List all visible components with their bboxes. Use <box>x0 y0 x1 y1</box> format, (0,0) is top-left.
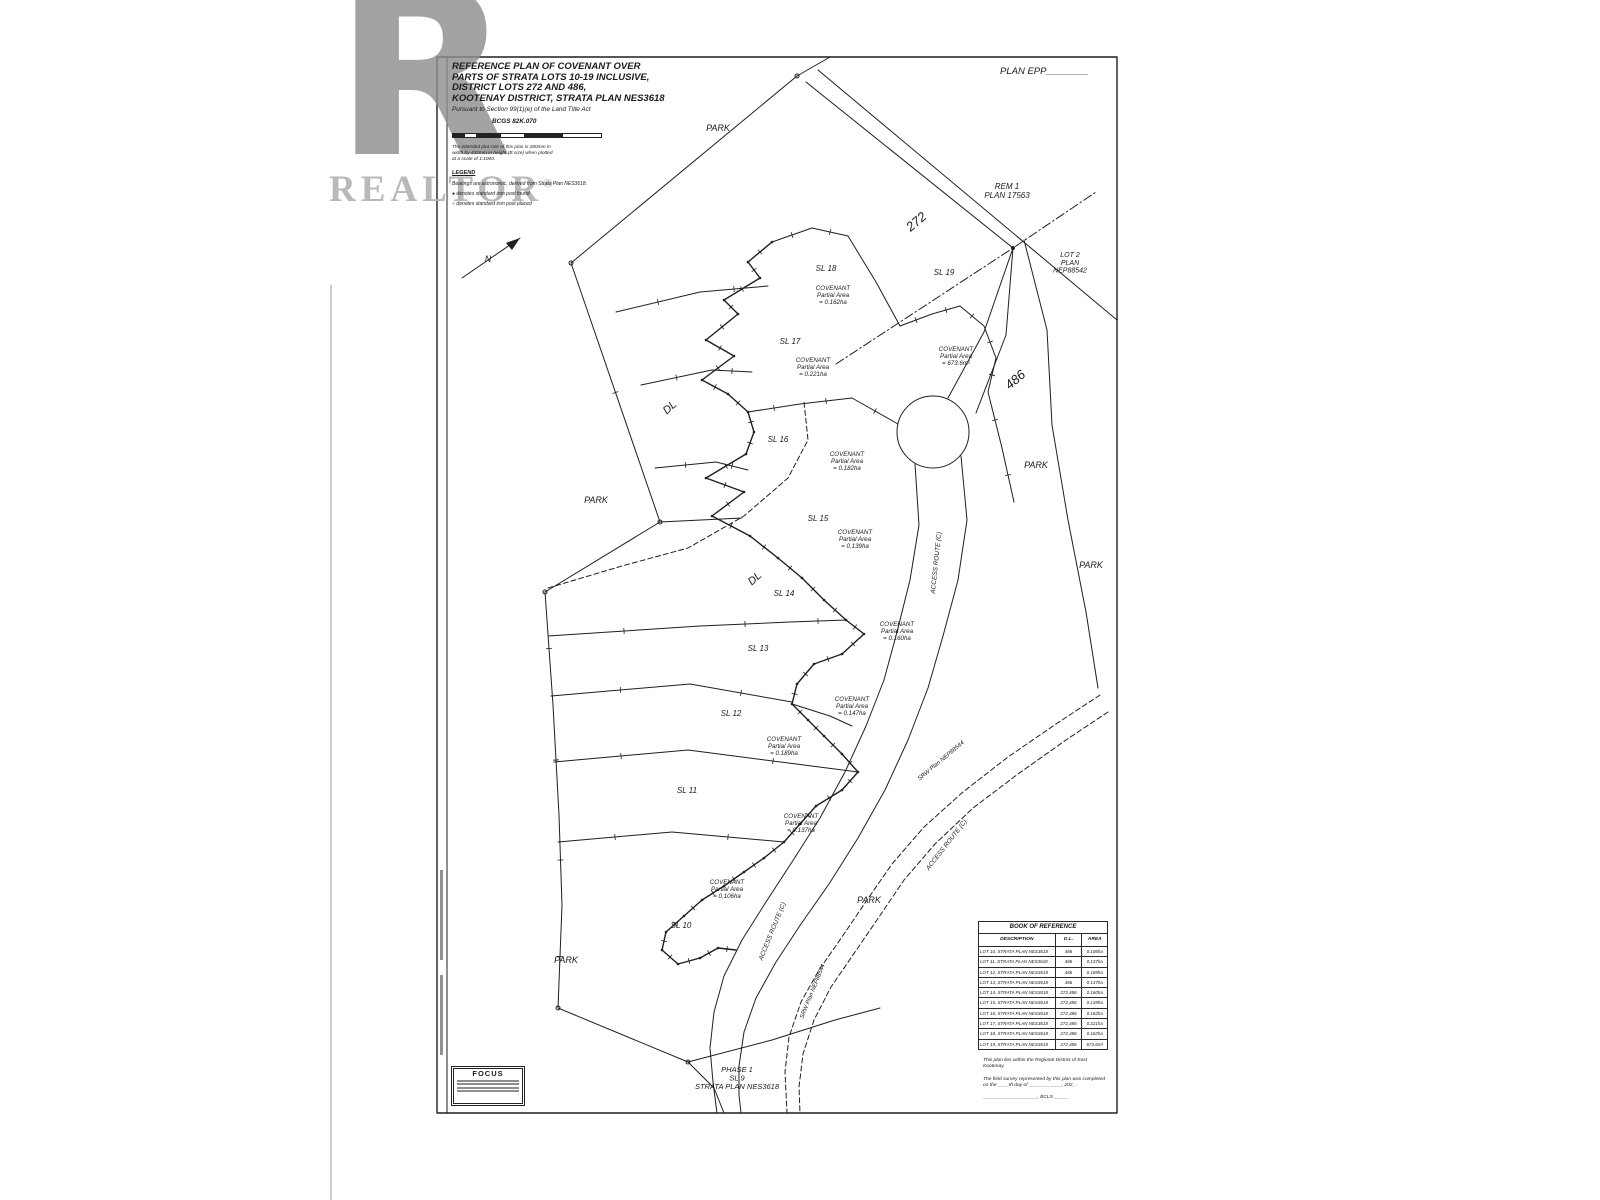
survey-point <box>807 719 810 722</box>
table-cell: 0.160ha <box>1082 988 1108 998</box>
north-arrow-head <box>506 238 520 250</box>
bearing-tick <box>728 834 729 840</box>
bcgs-reference: BCGS 82K.070 <box>492 118 682 125</box>
lot-line <box>655 462 748 470</box>
scale-bar <box>452 130 602 138</box>
survey-point <box>747 261 750 264</box>
table-cell: 0.189ha <box>1082 967 1108 977</box>
lot-line <box>641 370 752 385</box>
table-row: LOT 10, STRATA PLAN NES36184860.106ha <box>979 947 1108 957</box>
survey-point <box>701 379 704 382</box>
lot-line <box>558 832 784 842</box>
covenant-18-label: COVENANTPartial Area= 0.162ha <box>816 285 852 306</box>
west-boundary <box>545 522 660 592</box>
table-cell: 673.6m² <box>1082 1039 1108 1049</box>
table-cell: 486 <box>1055 947 1082 957</box>
survey-point <box>823 599 826 602</box>
survey-point <box>665 931 668 934</box>
survey-point <box>749 535 752 538</box>
table-head: BOOK OF REFERENCE DESCRIPTIOND.L.AREA <box>979 922 1108 947</box>
survey-point <box>857 771 860 774</box>
cul-de-sac <box>897 396 969 468</box>
lot2-plan-label: LOT 2PLANNEP88542 <box>1053 252 1087 275</box>
table-cell: LOT 19, STRATA PLAN NES3618 <box>979 1039 1056 1049</box>
table-cell: 272,486 <box>1055 1008 1082 1018</box>
table-cell: 0.147ha <box>1082 977 1108 987</box>
table-cell: LOT 14, STRATA PLAN NES3618 <box>979 988 1056 998</box>
lot-line <box>551 684 792 702</box>
table-title-row: BOOK OF REFERENCE <box>979 922 1108 934</box>
srw-plan-label: SRW Plan NEP88544 <box>799 963 827 1020</box>
survey-point <box>783 841 786 844</box>
survey-point <box>723 299 726 302</box>
dl-boundary <box>836 192 1096 364</box>
table-row: LOT 11, STRATA PLAN NES36184860.137ha <box>979 957 1108 967</box>
bearing-tick <box>615 834 616 840</box>
survey-point <box>717 947 720 950</box>
bearing-tick <box>874 408 877 413</box>
column-header: DESCRIPTION <box>979 934 1056 947</box>
table-cell: 0.182ha <box>1082 1008 1108 1018</box>
table-cell: 0.162ha <box>1082 1029 1108 1039</box>
access-route-label: ACCESS ROUTE (C) <box>930 532 944 596</box>
park-label: PARK <box>584 495 609 505</box>
survey-point <box>743 491 746 494</box>
illegible-margin-text <box>440 870 443 960</box>
book-of-reference-table: BOOK OF REFERENCE DESCRIPTIOND.L.AREA LO… <box>978 921 1108 1050</box>
table-cell: 272,486 <box>1055 1029 1082 1039</box>
survey-point <box>677 963 680 966</box>
table-cell: 486 <box>1055 957 1082 967</box>
surveyor-firm-inner: FOCUS <box>453 1068 523 1104</box>
table-cell: 272,486 <box>1055 988 1082 998</box>
survey-point <box>737 313 740 316</box>
table-row: LOT 15, STRATA PLAN NES3618272,4860.139h… <box>979 998 1108 1008</box>
survey-point <box>813 663 816 666</box>
sl-11-label: SL 11 <box>677 786 697 795</box>
certification-notes: This plan lies within the Regional Distr… <box>983 1058 1113 1101</box>
covenant-10-label: COVENANTPartial Area= 0.106ha <box>710 879 746 900</box>
table-cell: 0.221ha <box>1082 1019 1108 1029</box>
survey-point <box>683 915 686 918</box>
table-row: LOT 19, STRATA PLAN NES3618272,486673.6m… <box>979 1039 1108 1049</box>
covenant-14-label: COVENANTPartial Area= 0.160ha <box>880 621 916 642</box>
covenant-12-label: COVENANTPartial Area= 0.189ha <box>767 736 803 757</box>
bearing-tick <box>621 753 622 759</box>
lot-line <box>900 306 1014 502</box>
sl-13-label: SL 13 <box>748 644 769 653</box>
bearing-tick <box>740 690 741 696</box>
lot-line <box>772 228 848 242</box>
park-label: PARK <box>554 955 579 965</box>
table-cell: 272,486 <box>1055 1019 1082 1029</box>
survey-point <box>701 899 704 902</box>
sl-18-label: SL 18 <box>816 264 837 273</box>
covenant-11-label: COVENANTPartial Area= 0.137ha <box>784 813 820 834</box>
sl-16-label: SL 16 <box>768 435 789 444</box>
sl-12-label: SL 12 <box>721 709 742 718</box>
column-header: AREA <box>1082 934 1108 947</box>
survey-point <box>841 653 844 656</box>
sl-17-label: SL 17 <box>780 337 801 346</box>
south-boundary <box>558 1008 688 1062</box>
lot-line <box>548 620 846 636</box>
table-row: LOT 17, STRATA PLAN NES3618272,4860.221h… <box>979 1019 1108 1029</box>
north-arrow-label: N <box>485 254 492 264</box>
survey-point <box>705 339 708 342</box>
park-label: PARK <box>857 895 882 905</box>
survey-point <box>699 957 702 960</box>
illegible-text-bar <box>457 1080 519 1082</box>
illegible-text-bar <box>457 1083 519 1085</box>
sl-14-label: SL 14 <box>774 589 795 598</box>
bearing-tick <box>685 462 686 468</box>
plot-size-note-line: at a scale of 1:1000. <box>452 157 682 163</box>
table-row: LOT 13, STRATA PLAN NES36184860.147ha <box>979 977 1108 987</box>
park-label: PARK <box>706 123 731 133</box>
iron-post <box>1011 246 1015 250</box>
survey-point <box>733 355 736 358</box>
illegible-text-bar <box>457 1087 519 1089</box>
covenant-15-label: COVENANTPartial Area= 0.139ha <box>838 529 874 550</box>
bearing-tick <box>773 758 774 764</box>
table-row: LOT 12, STRATA PLAN NES36184860.189ha <box>979 967 1108 977</box>
table-row: LOT 16, STRATA PLAN NES3618272,4860.182h… <box>979 1008 1108 1018</box>
bearing-tick <box>826 398 827 404</box>
lot-line <box>616 286 768 312</box>
srw-plan-label: SRW Plan NEP88544 <box>917 740 966 782</box>
surveyor-firm-box: FOCUS <box>451 1066 525 1106</box>
table-cell: LOT 15, STRATA PLAN NES3618 <box>979 998 1056 1008</box>
boundary <box>818 70 1117 320</box>
survey-point <box>763 857 766 860</box>
survey-point <box>841 753 844 756</box>
illegible-text-bar <box>457 1090 519 1092</box>
lot-line <box>554 750 858 772</box>
survey-point <box>661 949 664 952</box>
covenant-17-label: COVENANTPartial Area= 0.221ha <box>796 357 832 378</box>
access-road-line <box>710 464 919 1113</box>
survey-point <box>777 557 780 560</box>
lot-line <box>660 518 742 522</box>
table-cell: 0.139ha <box>1082 998 1108 1008</box>
survey-point <box>745 453 748 456</box>
rem-plan-label: REM 1PLAN 17563 <box>984 182 1030 200</box>
note-line: The field survey represented by this pla… <box>983 1077 1113 1083</box>
south-boundary <box>688 1008 880 1062</box>
plan-title-line: REFERENCE PLAN OF COVENANT OVER <box>452 62 682 73</box>
table-cell: LOT 10, STRATA PLAN NES3618 <box>979 947 1056 957</box>
dl-272-label: 272 <box>902 208 930 235</box>
survey-point <box>815 805 818 808</box>
bearing-tick <box>620 687 621 693</box>
plan-title-line: KOOTENAY DISTRICT, STRATA PLAN NES3618 <box>452 94 682 105</box>
survey-point <box>796 683 799 686</box>
table-cell: LOT 13, STRATA PLAN NES3618 <box>979 977 1056 987</box>
survey-point <box>743 871 746 874</box>
bearing-tick <box>774 405 775 411</box>
plot-size-note: The intended plot size of this plan is 2… <box>452 145 682 162</box>
table-body: LOT 10, STRATA PLAN NES36184860.106haLOT… <box>979 947 1108 1050</box>
legend-bearings-note: Bearings are astronomic, derived from St… <box>452 181 682 187</box>
table-cell: LOT 11, STRATA PLAN NES3618 <box>979 957 1056 967</box>
survey-point <box>841 789 844 792</box>
survey-drawing: PARKREM 1PLAN 17563272LOT 2PLANNEP885424… <box>0 0 1600 1200</box>
survey-point <box>753 431 756 434</box>
table-cell: LOT 16, STRATA PLAN NES3618 <box>979 1008 1056 1018</box>
surveyor-firm-name: FOCUS <box>454 1069 522 1078</box>
survey-point <box>823 735 826 738</box>
scanned-plan-page: PARKREM 1PLAN 17563272LOT 2PLANNEP885424… <box>0 0 1600 1200</box>
sl-10-label: SL 10 <box>671 921 692 930</box>
survey-point <box>863 633 866 636</box>
plan-number-blank: PLAN EPP________ <box>1000 66 1089 77</box>
survey-point <box>801 577 804 580</box>
covenant-16-label: COVENANTPartial Area= 0.182ha <box>830 451 866 472</box>
table-title: BOOK OF REFERENCE <box>979 922 1108 934</box>
dl-486-label: 486 <box>1002 366 1029 392</box>
dl-label: DL <box>746 570 764 588</box>
legend-item-post-placed: ○ denotes standard iron post placed <box>452 201 682 207</box>
phase-label: PHASE 1SL 9STRATA PLAN NES3618 <box>695 1065 780 1091</box>
pursuant-note: Pursuant to Section 99(1)(e) of the Land… <box>452 106 682 113</box>
survey-point <box>727 393 730 396</box>
dl-label: DL <box>661 399 679 417</box>
legend-item-post-found: ● denotes standard iron post found <box>452 191 682 197</box>
covenant-boundary <box>662 242 864 964</box>
park-label: PARK <box>1024 460 1049 470</box>
table-cell: LOT 12, STRATA PLAN NES3618 <box>979 967 1056 977</box>
covenant-19-label: COVENANTPartial Area= 673.6m² <box>939 346 975 367</box>
access-route-label: ACCESS ROUTE (C) <box>757 901 787 962</box>
legend-title: LEGEND <box>452 170 682 176</box>
sl-19-label: SL 19 <box>934 268 955 277</box>
survey-point <box>759 277 762 280</box>
survey-point <box>845 619 848 622</box>
covenant-13-label: COVENANTPartial Area= 0.147ha <box>835 696 871 717</box>
table-row: LOT 18, STRATA PLAN NES3618272,4860.162h… <box>979 1029 1108 1039</box>
table-cell: 272,486 <box>1055 1039 1082 1049</box>
column-header: D.L. <box>1055 934 1082 947</box>
park-label: PARK <box>1079 560 1104 570</box>
lot-line <box>848 236 900 326</box>
survey-point <box>711 515 714 518</box>
table-cell: LOT 17, STRATA PLAN NES3618 <box>979 1019 1056 1029</box>
table-cell: 0.137ha <box>1082 957 1108 967</box>
lot-line <box>748 398 898 424</box>
sl-15-label: SL 15 <box>808 514 829 523</box>
table-header-row: DESCRIPTIOND.L.AREA <box>979 934 1108 947</box>
title-block: REFERENCE PLAN OF COVENANT OVER PARTS OF… <box>452 62 682 207</box>
bearing-tick <box>734 286 735 292</box>
illegible-margin-text <box>440 975 443 1055</box>
table-cell: LOT 18, STRATA PLAN NES3618 <box>979 1029 1056 1039</box>
table-row: LOT 14, STRATA PLAN NES3618272,4860.160h… <box>979 988 1108 998</box>
table-cell: 486 <box>1055 977 1082 987</box>
access-route-label: ACCESS ROUTE (C) <box>924 818 968 872</box>
note-line: ____________________, BCLS _____ <box>983 1095 1113 1101</box>
survey-point <box>705 477 708 480</box>
bearing-tick <box>727 946 728 952</box>
west-boundary <box>545 592 562 1008</box>
table-cell: 486 <box>1055 967 1082 977</box>
table-cell: 0.106ha <box>1082 947 1108 957</box>
table-cell: 272,486 <box>1055 998 1082 1008</box>
